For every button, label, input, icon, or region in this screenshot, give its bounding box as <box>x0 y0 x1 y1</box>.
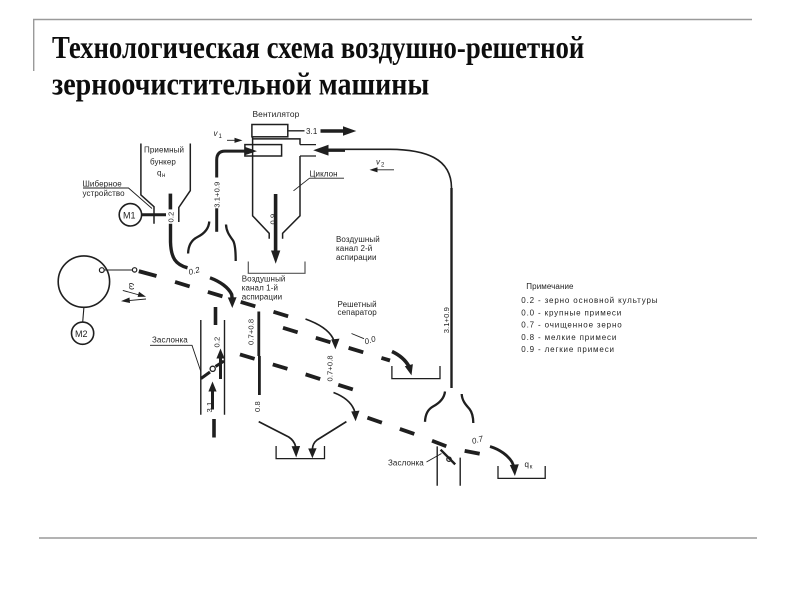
svg-text:Технологическая схема воздушно: Технологическая схема воздушно-решетной <box>52 31 584 66</box>
svg-text:0.9: 0.9 <box>269 214 278 225</box>
svg-text:Примечание: Примечание <box>526 282 574 291</box>
svg-text:н: н <box>162 173 165 179</box>
svg-text:0.2: 0.2 <box>212 337 221 348</box>
svg-text:3.1: 3.1 <box>205 402 214 413</box>
svg-text:аспирации: аспирации <box>336 253 377 262</box>
svg-text:0.7 - очищенное зерно: 0.7 - очищенное зерно <box>521 321 622 330</box>
svg-text:М2: М2 <box>75 329 88 339</box>
svg-text:0.0 - крупные примеси: 0.0 - крупные примеси <box>521 309 622 318</box>
svg-text:0.8: 0.8 <box>253 401 262 412</box>
svg-text:3.1: 3.1 <box>306 127 318 136</box>
svg-text:канал 1-й: канал 1-й <box>242 284 278 293</box>
svg-text:Заслонка: Заслонка <box>152 336 188 345</box>
svg-text:3.1+0.9: 3.1+0.9 <box>442 307 451 333</box>
svg-text:Приемный: Приемный <box>144 146 184 155</box>
svg-text:аспирации: аспирации <box>242 293 283 302</box>
svg-text:Вентилятор: Вентилятор <box>253 109 300 119</box>
svg-text:Воздушный: Воздушный <box>242 275 286 284</box>
svg-text:ω: ω <box>127 283 137 290</box>
svg-text:устройство: устройство <box>83 189 126 198</box>
svg-text:0.2 - зерно основной культур: 0.2 - зерно основной культуры <box>521 296 658 305</box>
svg-text:бункер: бункер <box>150 157 176 166</box>
svg-text:канал 2-й: канал 2-й <box>336 244 372 253</box>
svg-text:к: к <box>530 465 533 471</box>
svg-text:0.8 - мелкие примеси: 0.8 - мелкие примеси <box>521 333 617 342</box>
svg-text:Циклон: Циклон <box>310 170 338 179</box>
svg-text:Воздушный: Воздушный <box>336 235 380 244</box>
svg-text:Шиберное: Шиберное <box>83 179 123 188</box>
svg-text:сепаратор: сепаратор <box>338 308 378 317</box>
svg-text:0.9 - легкие примеси: 0.9 - легкие примеси <box>521 345 615 354</box>
svg-text:q: q <box>157 168 162 177</box>
svg-text:Заслонка: Заслонка <box>388 458 424 467</box>
svg-text:q: q <box>525 460 530 469</box>
svg-text:М1: М1 <box>123 210 136 220</box>
svg-text:0.7+0.8: 0.7+0.8 <box>247 319 256 345</box>
svg-text:0.2: 0.2 <box>166 212 175 223</box>
svg-text:0.7+0.8: 0.7+0.8 <box>326 355 335 381</box>
svg-text:зерноочистительной машины: зерноочистительной машины <box>52 66 429 102</box>
svg-text:3.1+0.9: 3.1+0.9 <box>213 182 222 208</box>
